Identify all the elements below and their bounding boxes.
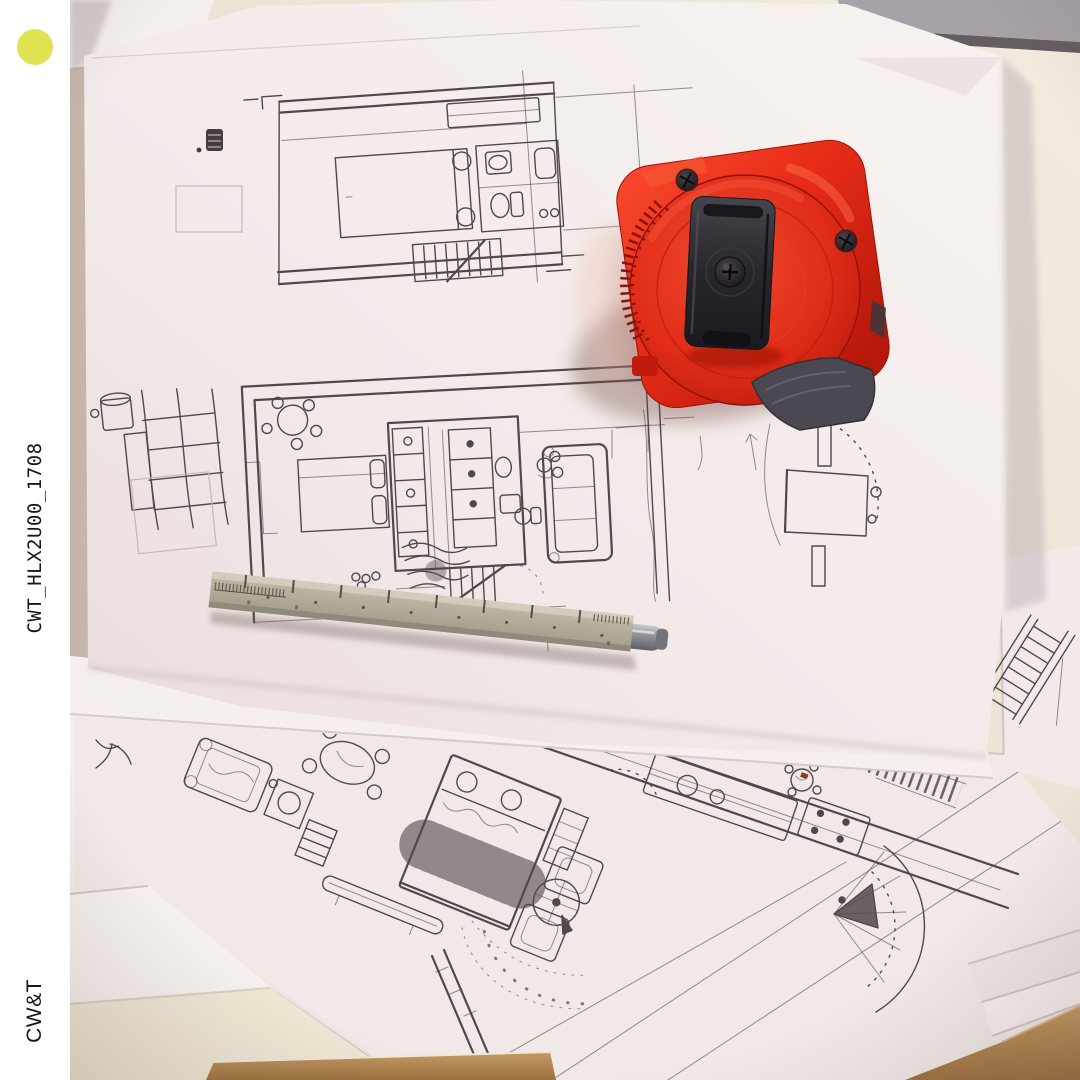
photo-floorplan-sketches [0,0,1080,1080]
project-code-label: CWT_HLX2U00_1708 [24,442,46,633]
vignette [70,0,1080,1080]
sidebar: CWT_HLX2U00_1708 CW&T [0,0,70,1080]
brand-label: CW&T [23,979,47,1043]
poster-frame: CWT_HLX2U00_1708 CW&T [0,0,1080,1080]
accent-dot-icon [16,28,56,68]
